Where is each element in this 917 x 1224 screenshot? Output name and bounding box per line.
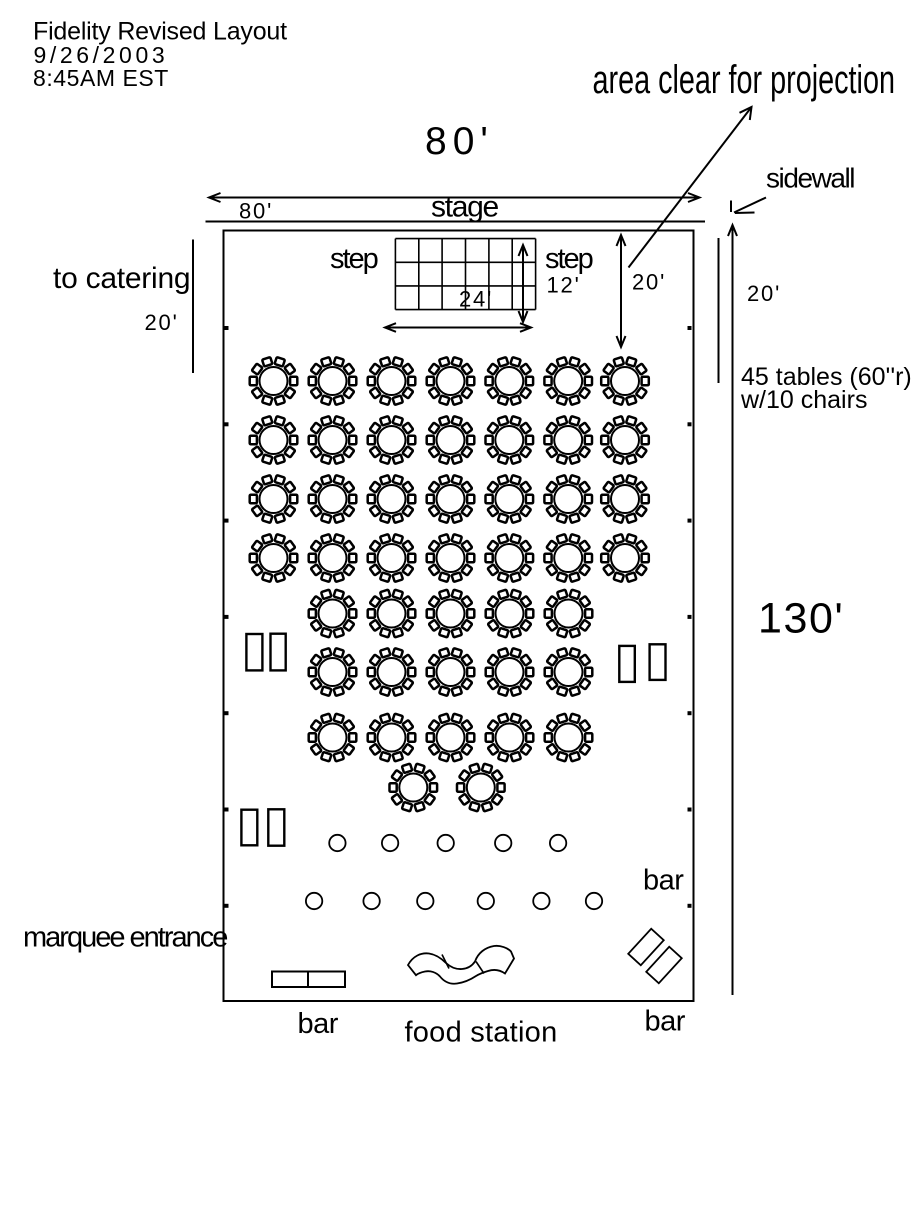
- svg-text:12': 12': [547, 273, 581, 298]
- svg-text:80': 80': [239, 198, 273, 223]
- svg-text:20': 20': [747, 281, 781, 306]
- svg-text:8:45AM EST: 8:45AM EST: [33, 65, 169, 91]
- svg-text:bar: bar: [643, 865, 684, 897]
- svg-text:step: step: [330, 243, 378, 275]
- svg-text:bar: bar: [298, 1008, 339, 1040]
- svg-text:step: step: [545, 243, 593, 275]
- svg-text:130': 130': [758, 595, 844, 643]
- svg-text:area clear for projection: area clear for projection: [593, 57, 895, 102]
- svg-text:80': 80': [425, 120, 494, 163]
- svg-text:w/10 chairs: w/10 chairs: [740, 386, 867, 414]
- svg-text:20': 20': [145, 310, 179, 335]
- svg-text:bar: bar: [645, 1006, 686, 1038]
- svg-text:marquee entrance: marquee entrance: [23, 922, 227, 954]
- svg-text:stage: stage: [431, 191, 499, 224]
- svg-text:sidewall: sidewall: [766, 163, 854, 194]
- svg-text:to catering: to catering: [53, 262, 190, 295]
- svg-text:food station: food station: [405, 1017, 558, 1049]
- svg-text:20': 20': [632, 270, 666, 295]
- svg-text:24': 24': [459, 287, 493, 312]
